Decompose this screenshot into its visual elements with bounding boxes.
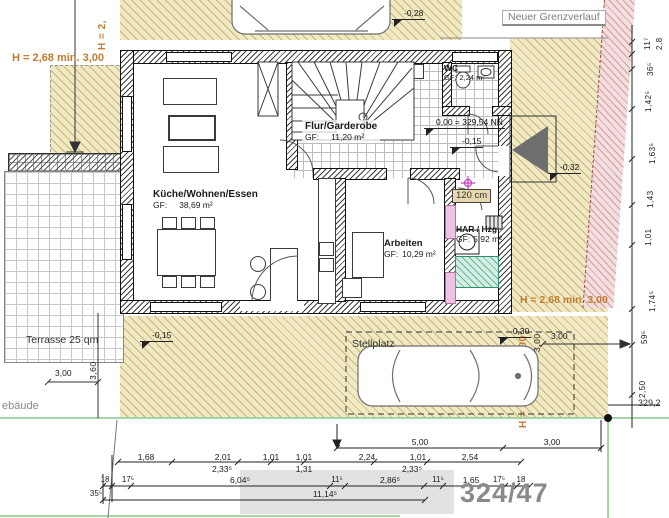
highlighted-wall-b [445,272,456,304]
level-floor-zero: 0,00 = 329,54 NN [424,117,505,129]
highlighted-wall-a [445,205,456,239]
parking-label: Stellplatz [352,338,395,350]
terrace-label: Terrasse 25 qm [26,334,98,346]
room-label-har: HAR / Hzg GF:5,92 m² [456,224,502,244]
level-garage: -0,28 [392,8,425,20]
room-label-office: Arbeiten GF:10,29 m² [384,238,436,259]
room-label-hall: Flur/Garderobe GF:11,20 m² [302,120,380,143]
level-hall: -0,15 [450,136,483,148]
level-parking: -0,30 [498,326,531,338]
room-label-wc: WC GF:2,24 m² [444,63,485,82]
height-note-left: H = 2,68 min. 3,00 [12,52,104,64]
height-note-right: H = 2,68 min. 3,00 [520,294,608,306]
parcel-number: 324/47 [460,478,549,509]
boundary-label: Neuer Grenzverlauf [502,10,606,26]
door-width-note: 120 cm [452,189,491,203]
room-label-kitchen: Küche/Wohnen/Essen GF:38,69 m² [150,188,261,211]
level-terrace: -0,15 [140,330,173,342]
level-entry: -0,32 [548,162,581,174]
boundary-elevation: 329,2 [638,398,661,408]
floor-plan-canvas: Neuer Grenzverlauf H = 2, H = 2,68 min. … [0,0,669,518]
plan-drawing-layer [0,0,669,518]
